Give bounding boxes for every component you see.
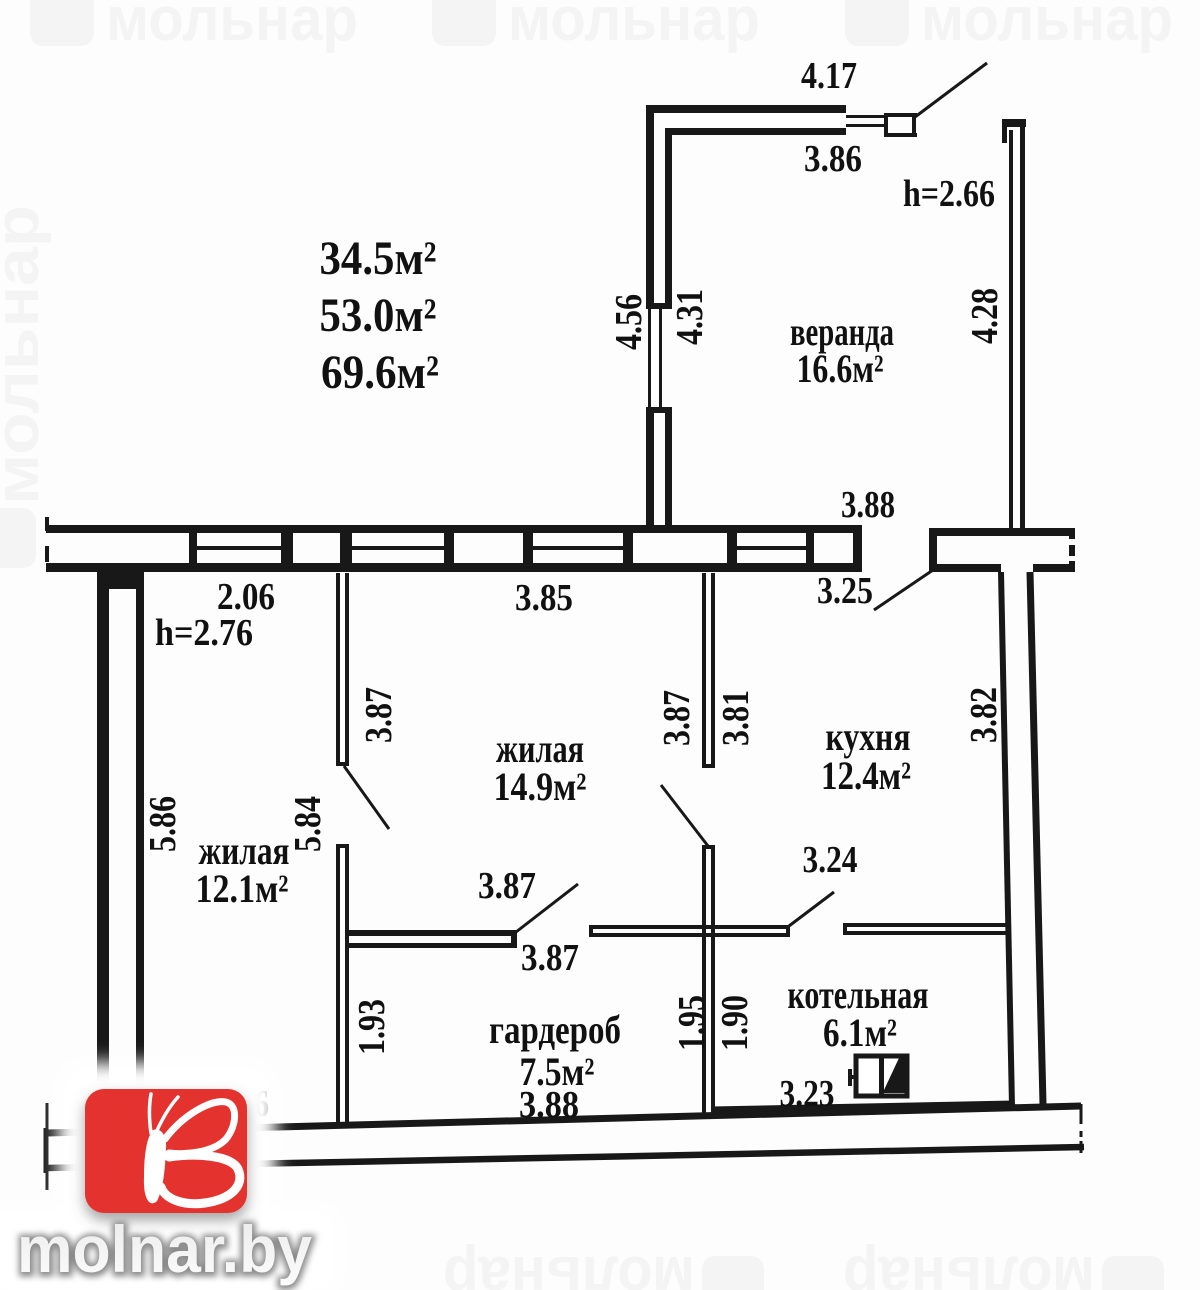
svg-text:5.86: 5.86 [142,796,184,852]
svg-text:мольнар: мольнар [443,1243,695,1290]
svg-text:3.86: 3.86 [804,138,862,180]
svg-text:6.1м²: 6.1м² [823,1010,897,1055]
svg-text:мольнар: мольнар [921,0,1173,54]
svg-text:69.6м²: 69.6м² [321,346,439,399]
svg-text:16.6м²: 16.6м² [797,346,884,391]
svg-text:3.24: 3.24 [803,839,858,881]
svg-text:3.82: 3.82 [963,687,1005,743]
svg-text:3.88: 3.88 [519,1084,579,1126]
svg-text:12.4м²: 12.4м² [821,753,911,798]
svg-text:14.9м²: 14.9м² [494,764,587,809]
svg-text:4.31: 4.31 [669,289,711,345]
svg-text:мольнар: мольнар [0,205,52,505]
svg-text:molnar.by: molnar.by [17,1212,312,1286]
svg-text:4.28: 4.28 [964,288,1006,344]
svg-text:3.85: 3.85 [515,577,573,619]
svg-text:h=2.76: h=2.76 [155,612,253,654]
svg-text:3.88: 3.88 [841,484,895,526]
svg-text:3.81: 3.81 [715,690,757,746]
svg-text:1.93: 1.93 [351,999,393,1055]
svg-text:h=2.66: h=2.66 [903,173,995,215]
svg-text:12.1м²: 12.1м² [196,866,289,911]
svg-text:1.90: 1.90 [714,995,756,1051]
svg-text:3.87: 3.87 [521,937,579,979]
svg-text:5.84: 5.84 [287,796,329,852]
svg-text:мольнар: мольнар [843,1243,1095,1290]
svg-text:3.87: 3.87 [656,690,698,746]
svg-text:3.25: 3.25 [817,570,873,612]
svg-text:мольнар: мольнар [106,0,358,54]
svg-text:3.87: 3.87 [478,865,536,907]
svg-text:гардероб: гардероб [489,1007,621,1052]
svg-text:4.17: 4.17 [801,55,857,97]
svg-text:мольнар: мольнар [508,0,760,54]
svg-text:53.0м²: 53.0м² [320,289,437,342]
svg-text:1.95: 1.95 [671,995,713,1051]
svg-text:3.23: 3.23 [780,1073,835,1115]
svg-text:3.87: 3.87 [358,687,400,743]
svg-text:34.5м²: 34.5м² [320,232,437,285]
svg-text:4.56: 4.56 [608,294,650,350]
